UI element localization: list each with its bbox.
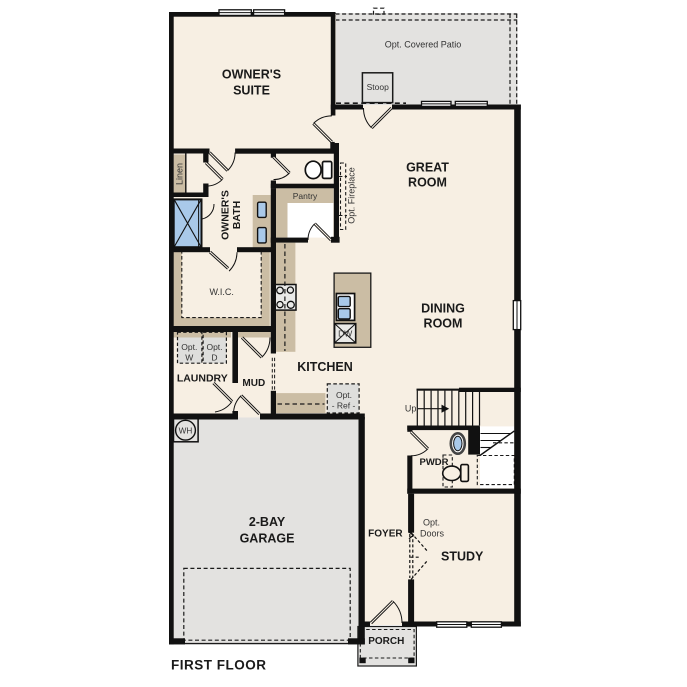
svg-text:WH: WH [179,426,193,435]
svg-text:ROOM: ROOM [408,176,447,190]
svg-text:Doors: Doors [420,529,445,539]
svg-text:FOYER: FOYER [368,528,403,539]
svg-text:W.I.C.: W.I.C. [209,287,234,297]
svg-text:Opt. Fireplace: Opt. Fireplace [347,167,357,224]
svg-text:Opt. Covered Patio: Opt. Covered Patio [385,39,462,49]
svg-text:2-BAY: 2-BAY [249,515,286,529]
svg-text:Up: Up [405,403,417,413]
svg-text:GREAT: GREAT [406,160,449,174]
svg-text:PWDR: PWDR [419,457,448,468]
svg-text:KITCHEN: KITCHEN [297,360,353,374]
svg-text:FIRST FLOOR: FIRST FLOOR [171,658,267,673]
svg-text:OWNER'S: OWNER'S [220,190,232,240]
svg-text:Opt.: Opt. [423,518,440,528]
svg-text:ROOM: ROOM [424,316,463,330]
svg-text:Linen: Linen [175,163,185,185]
svg-text:Opt.: Opt. [181,342,197,352]
svg-text:D: D [211,353,217,363]
svg-text:MUD: MUD [242,378,265,389]
svg-text:Opt.: Opt. [206,342,222,352]
svg-text:DINING: DINING [421,302,465,316]
svg-text:LAUNDRY: LAUNDRY [177,373,228,385]
svg-text:Pantry: Pantry [293,191,318,201]
svg-text:Stoop: Stoop [367,82,389,92]
svg-text:SUITE: SUITE [233,83,270,97]
svg-text:Opt.: Opt. [336,390,352,400]
svg-text:W: W [185,353,193,363]
svg-text:OWNER'S: OWNER'S [222,68,281,82]
svg-text:BATH: BATH [231,201,243,229]
svg-text:GARAGE: GARAGE [240,532,295,546]
svg-text:PORCH: PORCH [368,636,404,647]
svg-text:STUDY: STUDY [441,550,484,564]
svg-text:DW: DW [338,329,352,339]
svg-text:- Ref -: - Ref - [332,400,356,410]
